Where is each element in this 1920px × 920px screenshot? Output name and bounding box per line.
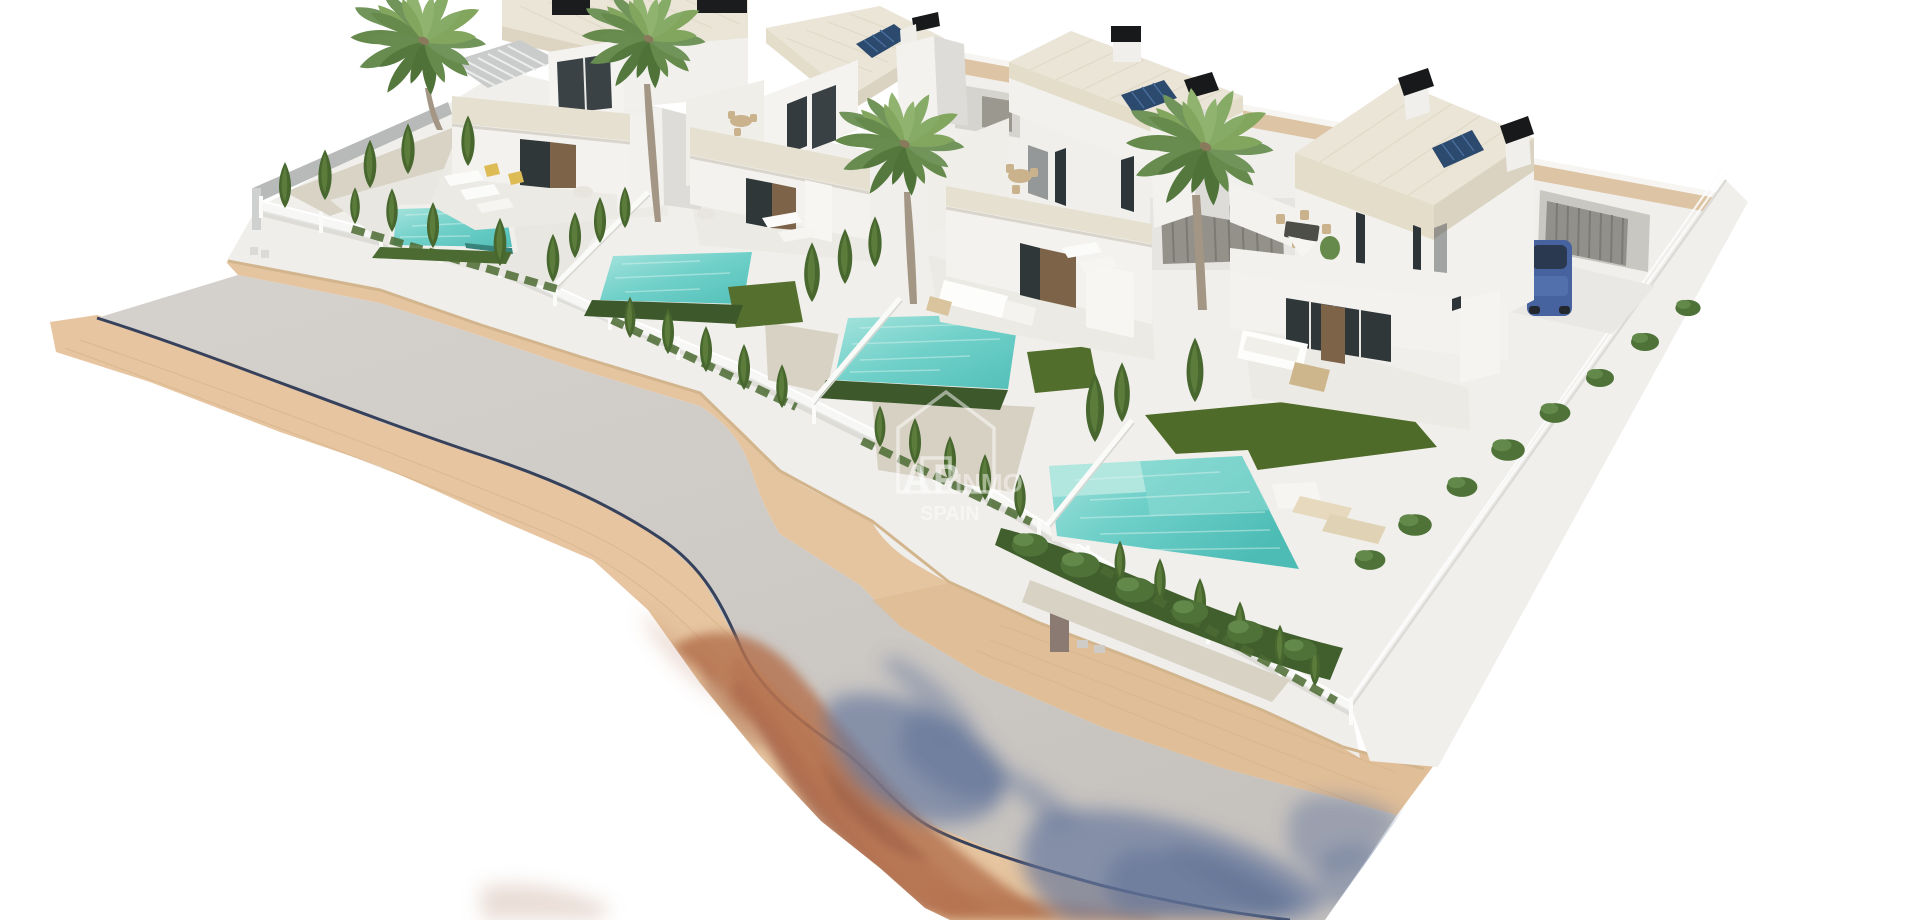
svg-text:AP: AP	[902, 457, 962, 501]
svg-text:SPAIN: SPAIN	[920, 503, 980, 525]
svg-text:INMO: INMO	[955, 468, 1023, 498]
